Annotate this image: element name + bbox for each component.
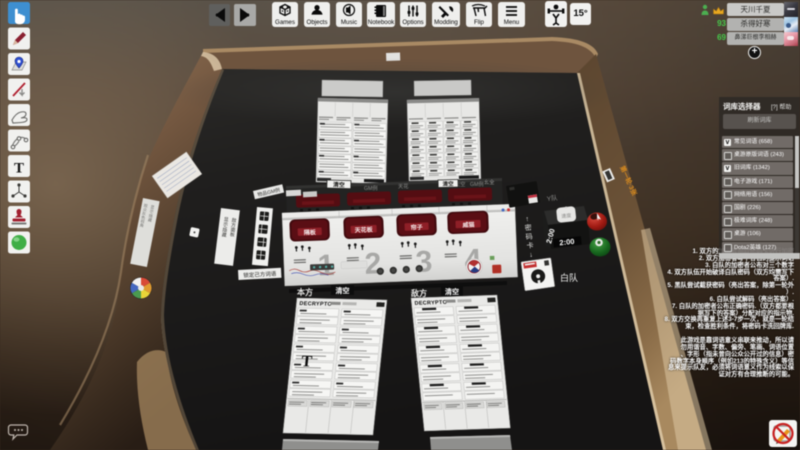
svg-text:Modding: Modding bbox=[434, 19, 458, 26]
svg-text:GM例: GM例 bbox=[364, 184, 378, 192]
svg-text:2:00: 2:00 bbox=[559, 237, 575, 248]
svg-text:清空: 清空 bbox=[445, 287, 459, 296]
svg-text:Games: Games bbox=[275, 19, 295, 26]
svg-text:Options: Options bbox=[402, 19, 423, 26]
svg-text:↓: ↓ bbox=[529, 252, 533, 259]
svg-text:DECRYPTO: DECRYPTO bbox=[414, 300, 448, 307]
svg-text:T: T bbox=[301, 353, 314, 370]
svg-text:Objects: Objects bbox=[307, 19, 328, 26]
svg-text:白队: 白队 bbox=[560, 272, 578, 283]
svg-text:敌方: 敌方 bbox=[411, 288, 427, 298]
svg-text:幺全: 幺全 bbox=[484, 178, 495, 186]
svg-text:T: T bbox=[14, 161, 24, 177]
svg-text:码: 码 bbox=[525, 233, 533, 242]
svg-text:Flip: Flip bbox=[474, 19, 485, 26]
svg-text:速度: 速度 bbox=[561, 212, 572, 220]
svg-text:Music: Music bbox=[341, 19, 357, 26]
svg-text:清空: 清空 bbox=[336, 286, 350, 295]
svg-text:↑: ↑ bbox=[525, 216, 529, 223]
svg-text:GM例: GM例 bbox=[470, 180, 484, 188]
svg-text:DECRYPTO: DECRYPTO bbox=[299, 301, 333, 308]
svg-text:Menu: Menu bbox=[504, 19, 520, 26]
svg-text:本方: 本方 bbox=[296, 287, 313, 297]
svg-text:天花: 天花 bbox=[398, 182, 408, 190]
svg-text:Notebook: Notebook bbox=[368, 19, 395, 26]
svg-text:3: 3 bbox=[415, 245, 433, 279]
